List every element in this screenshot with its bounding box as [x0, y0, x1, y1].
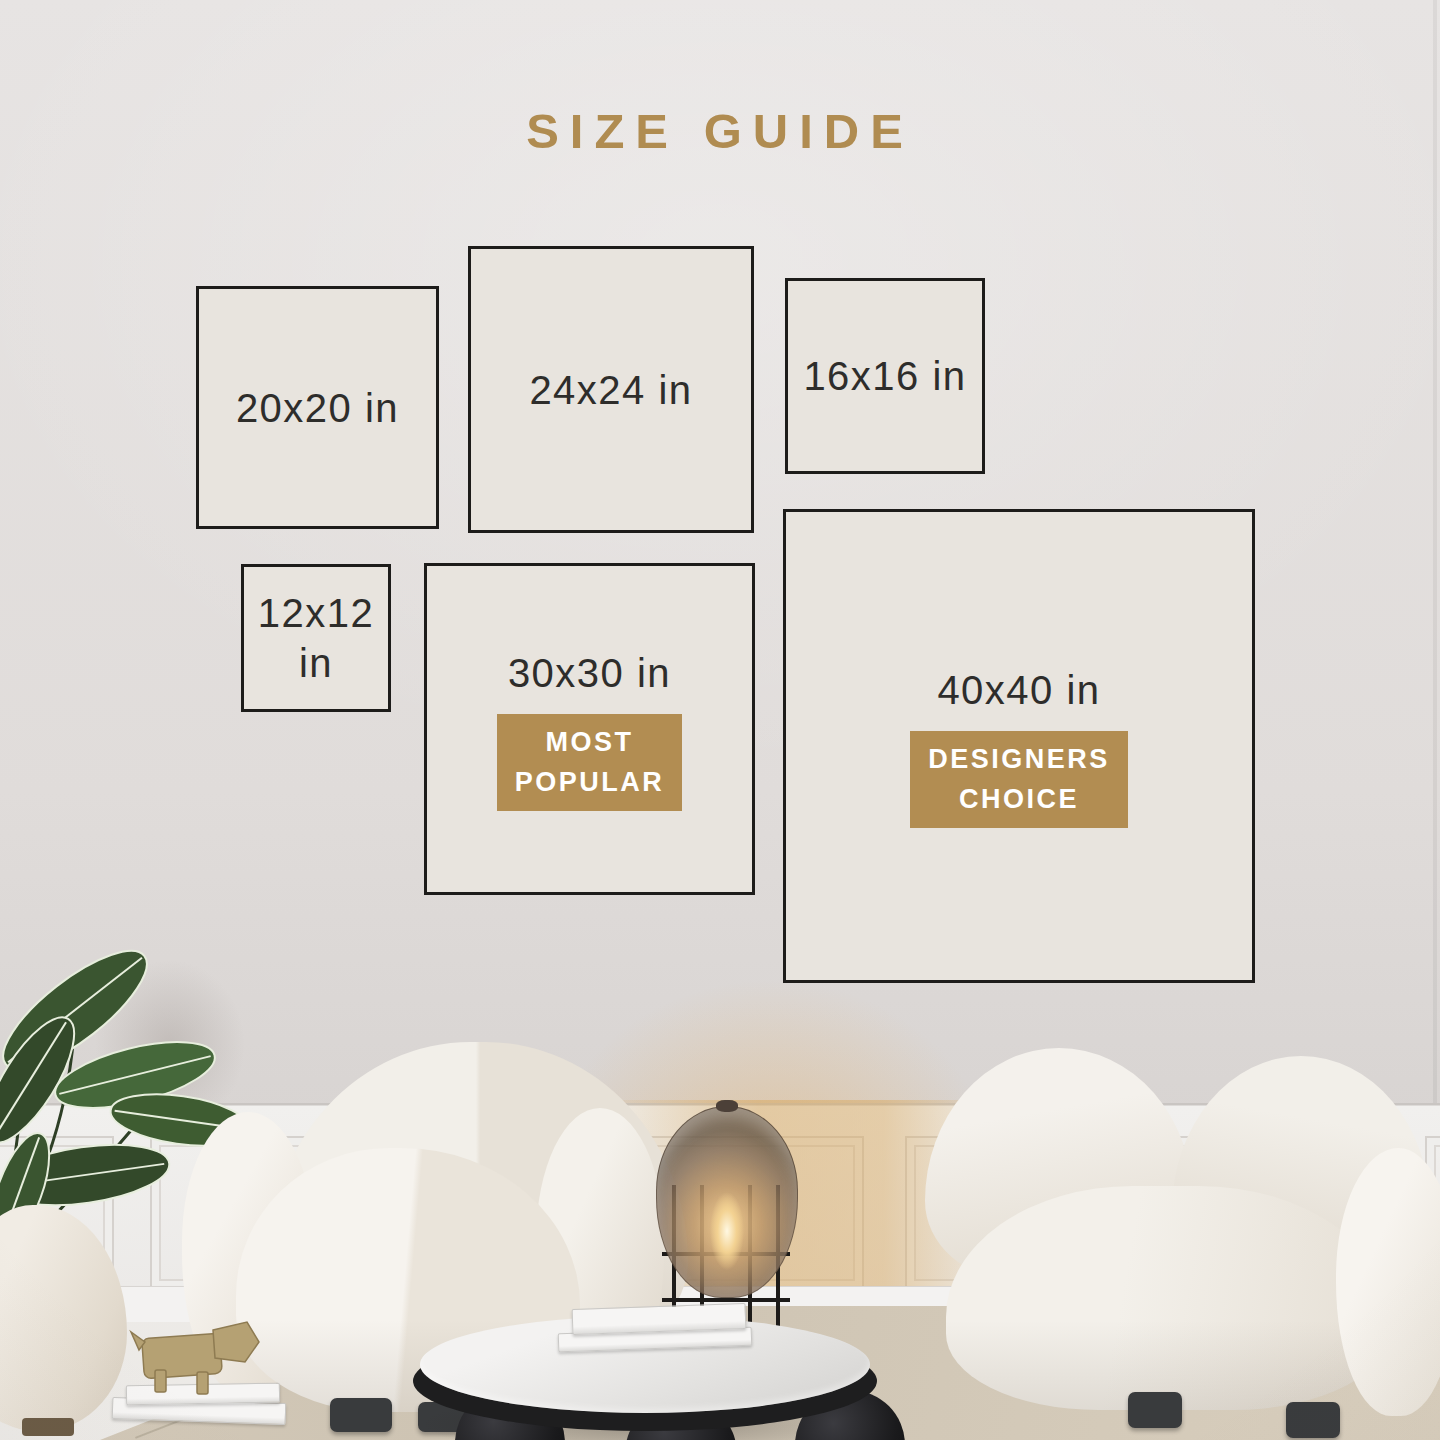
size-box-40x40: 40x40 in DESIGNERS CHOICE — [783, 509, 1255, 983]
sofa-foot — [1286, 1402, 1340, 1438]
wooden-animal-figurine — [105, 1302, 285, 1402]
pouf-foot — [22, 1418, 74, 1436]
sofa-foot — [1128, 1392, 1182, 1428]
lamp-bulb-glow — [710, 1192, 744, 1270]
page-title: SIZE GUIDE — [0, 103, 1440, 159]
size-label: 16x16 in — [803, 351, 966, 401]
size-box-20x20: 20x20 in — [196, 286, 439, 529]
wall-corner-line — [1433, 0, 1437, 1110]
designers-choice-badge: DESIGNERS CHOICE — [910, 731, 1128, 828]
lamp-crossbar — [662, 1298, 790, 1302]
size-box-12x12: 12x12 in — [241, 564, 391, 712]
size-label: 24x24 in — [529, 365, 692, 415]
size-label: 40x40 in — [937, 665, 1100, 715]
armchair-foot — [330, 1398, 392, 1432]
most-popular-badge: MOST POPULAR — [497, 714, 683, 811]
size-guide-image: SIZE GUIDE 20x20 in 24x24 in 16x16 in 12… — [0, 0, 1440, 1440]
size-box-24x24: 24x24 in — [468, 246, 754, 533]
size-box-16x16: 16x16 in — [785, 278, 985, 474]
size-label: 12x12 in — [258, 588, 374, 688]
lamp-cap — [716, 1100, 738, 1112]
size-label: 30x30 in — [508, 648, 671, 698]
size-box-30x30: 30x30 in MOST POPULAR — [424, 563, 755, 895]
size-label: 20x20 in — [236, 383, 399, 433]
sofa-seat — [946, 1186, 1394, 1410]
